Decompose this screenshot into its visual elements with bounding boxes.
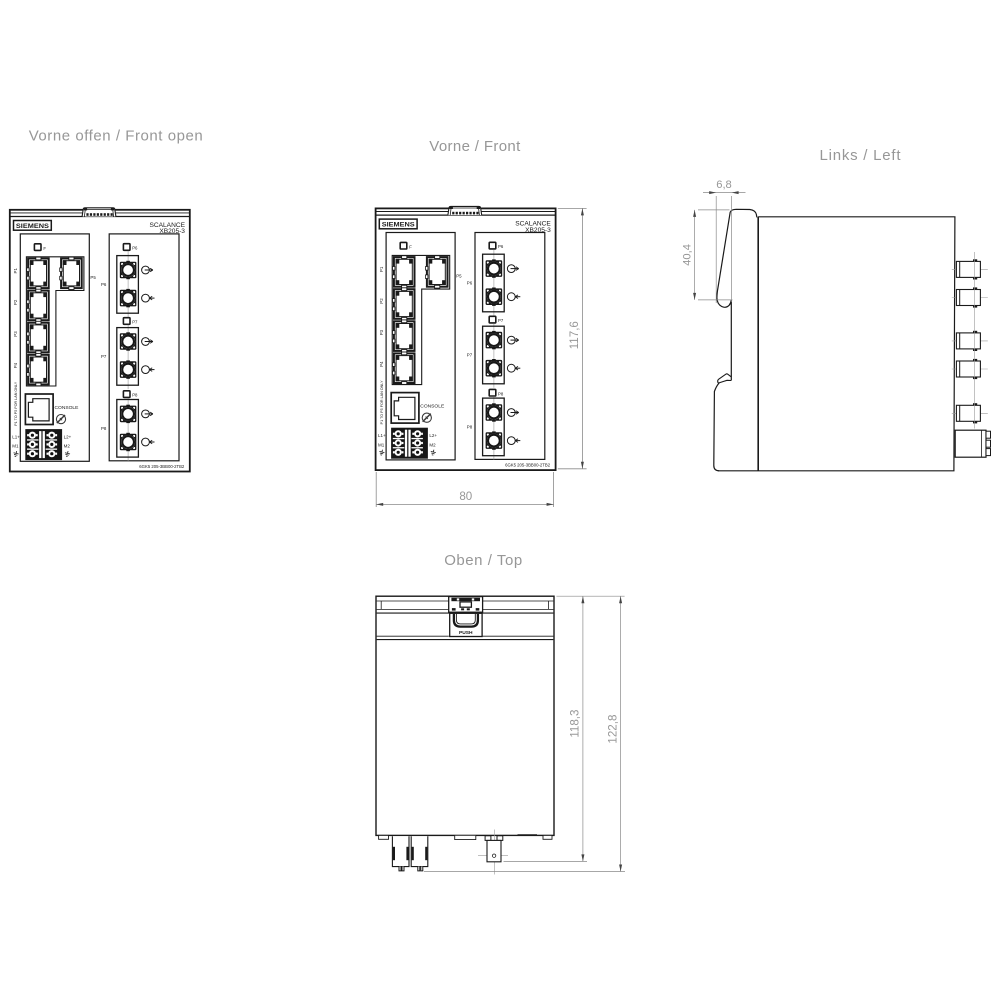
svg-text:P7: P7 xyxy=(467,353,473,358)
svg-text:P3: P3 xyxy=(379,329,384,335)
svg-text:P7: P7 xyxy=(101,354,107,359)
svg-text:F: F xyxy=(43,246,46,251)
svg-text:M2: M2 xyxy=(64,444,71,449)
svg-text:122,8: 122,8 xyxy=(606,715,619,744)
svg-text:L2+: L2+ xyxy=(64,435,72,440)
svg-text:P1 TO P5 FOR LAN ONLY: P1 TO P5 FOR LAN ONLY xyxy=(380,380,384,425)
svg-text:P4: P4 xyxy=(13,362,18,368)
svg-text:P3: P3 xyxy=(13,331,18,337)
svg-text:L1+: L1+ xyxy=(12,435,20,440)
svg-text:P4: P4 xyxy=(379,361,384,367)
svg-text:P1: P1 xyxy=(379,266,384,272)
svg-text:Vorne / Front: Vorne / Front xyxy=(429,138,521,155)
svg-text:P6: P6 xyxy=(101,282,107,287)
svg-text:CONSOLE: CONSOLE xyxy=(55,405,80,411)
svg-text:CONSOLE: CONSOLE xyxy=(420,404,445,410)
svg-text:P8: P8 xyxy=(498,391,504,396)
svg-text:M1: M1 xyxy=(378,442,385,447)
svg-text:P6: P6 xyxy=(498,244,504,249)
svg-text:P5: P5 xyxy=(90,275,96,280)
svg-text:M1: M1 xyxy=(12,444,19,449)
svg-text:M2: M2 xyxy=(429,442,436,447)
svg-text:L1+: L1+ xyxy=(378,433,386,438)
svg-text:SIEMENS: SIEMENS xyxy=(382,222,416,229)
svg-text:P5: P5 xyxy=(456,274,462,279)
svg-text:P2: P2 xyxy=(379,298,384,304)
svg-text:40,4: 40,4 xyxy=(681,244,693,266)
svg-text:P7: P7 xyxy=(498,318,504,323)
svg-text:P6: P6 xyxy=(132,246,138,251)
svg-text:P8: P8 xyxy=(467,425,473,430)
svg-text:P8: P8 xyxy=(101,426,107,431)
svg-text:SIEMENS: SIEMENS xyxy=(16,223,50,230)
svg-text:Oben / Top: Oben / Top xyxy=(444,552,522,569)
svg-text:118,3: 118,3 xyxy=(569,710,582,738)
svg-text:P1 TO P5 FOR LAN ONLY: P1 TO P5 FOR LAN ONLY xyxy=(14,381,18,426)
svg-text:Links / Left: Links / Left xyxy=(820,147,902,164)
svg-text:6,8: 6,8 xyxy=(716,179,732,191)
svg-text:P8: P8 xyxy=(132,393,138,398)
svg-text:P1: P1 xyxy=(13,268,18,274)
svg-text:PUSH: PUSH xyxy=(459,630,473,636)
svg-text:L2+: L2+ xyxy=(429,433,437,438)
svg-text:6GK5 205-3BB00-2TB2: 6GK5 205-3BB00-2TB2 xyxy=(139,464,185,469)
svg-text:P7: P7 xyxy=(132,320,138,325)
svg-text:117,6: 117,6 xyxy=(568,321,581,349)
svg-text:P6: P6 xyxy=(467,281,473,286)
svg-text:F: F xyxy=(409,245,412,250)
svg-text:80: 80 xyxy=(459,490,472,503)
svg-text:P2: P2 xyxy=(13,299,18,305)
svg-text:6GK5 205-3BB00-2TB2: 6GK5 205-3BB00-2TB2 xyxy=(505,463,551,468)
svg-text:Vorne offen / Front open: Vorne offen / Front open xyxy=(29,127,203,144)
